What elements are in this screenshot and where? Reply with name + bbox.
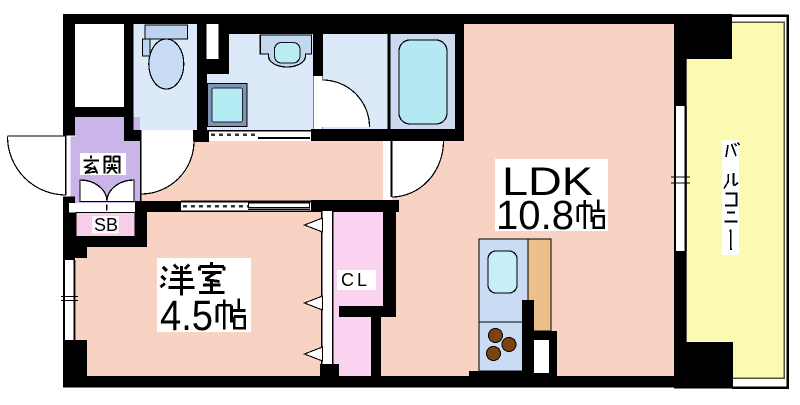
svg-text:CL: CL — [341, 270, 370, 290]
svg-text:10.8: 10.8 — [496, 192, 574, 238]
svg-text:SB: SB — [94, 215, 118, 235]
svg-text:4.5: 4.5 — [160, 292, 213, 340]
